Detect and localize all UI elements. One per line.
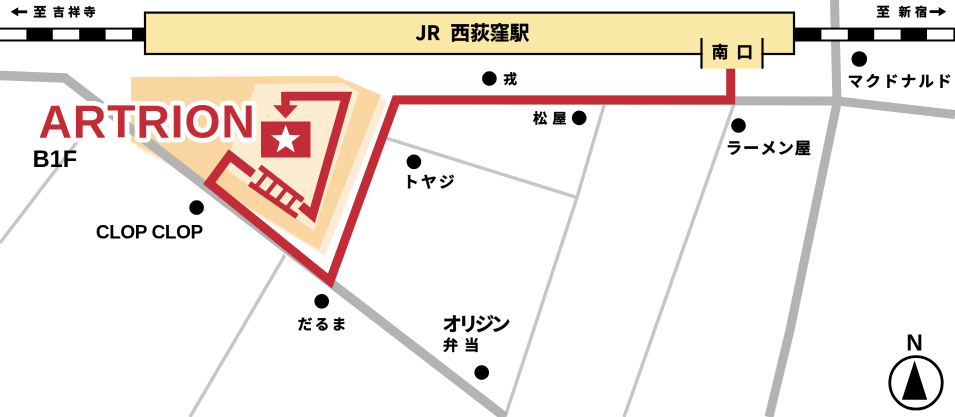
svg-text:N: N bbox=[906, 330, 923, 356]
svg-text:ARTRION: ARTRION bbox=[39, 96, 256, 148]
svg-text:B1F: B1F bbox=[33, 147, 78, 173]
svg-text:CLOP CLOP: CLOP CLOP bbox=[96, 223, 204, 244]
